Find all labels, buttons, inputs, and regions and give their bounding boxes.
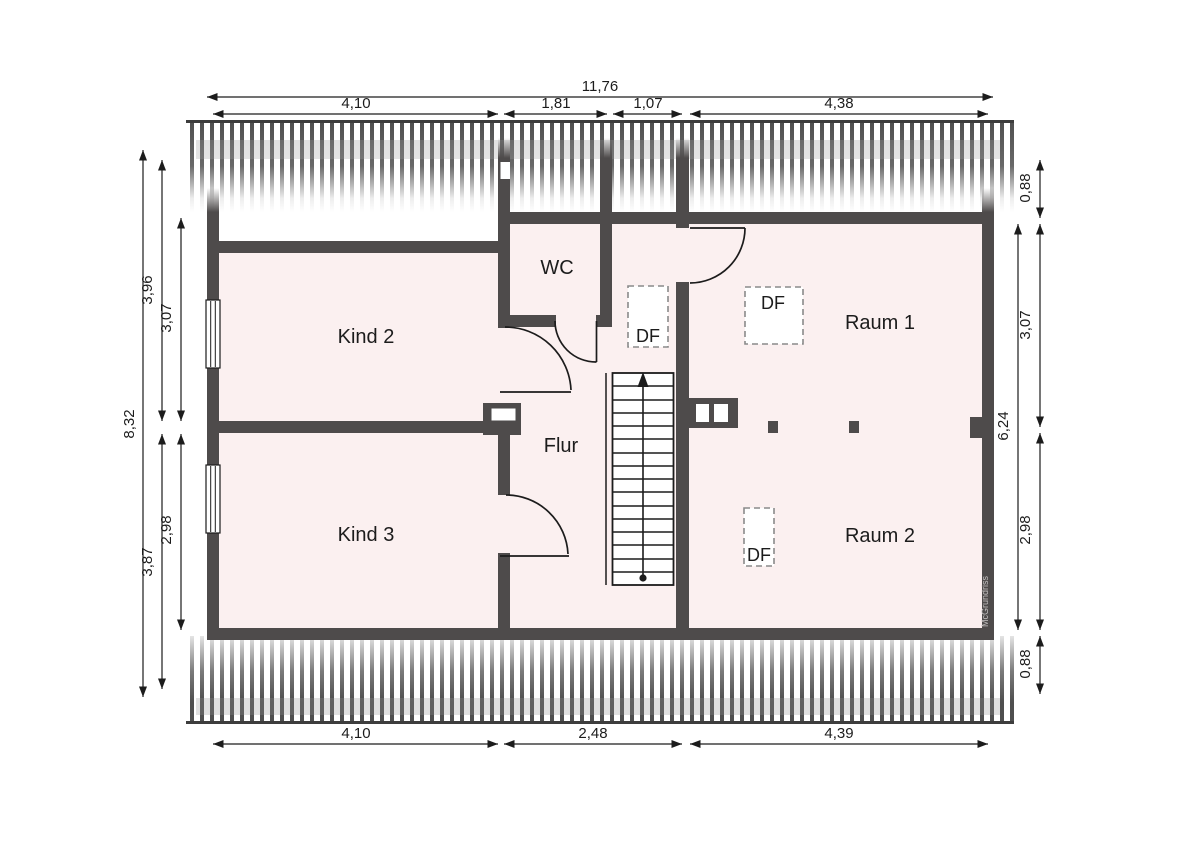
staircase xyxy=(606,372,674,585)
window-kind3 xyxy=(206,465,220,533)
dim-label-right-inner-total: 6,24 xyxy=(995,411,1012,440)
dim-label-bottom-3: 4,39 xyxy=(824,725,853,742)
room-label-kind3: Kind 3 xyxy=(338,524,395,546)
roof-window-label-raum2: DF xyxy=(747,545,771,565)
wall-divider-kind2-kind3 xyxy=(207,421,502,433)
post-2 xyxy=(849,421,859,433)
roof-hatch-bottom xyxy=(186,636,1014,724)
wall-flur-west-upper xyxy=(498,433,510,495)
stair-start-dot xyxy=(639,574,646,581)
watermark: McGrundriss xyxy=(980,575,990,627)
dim-label-top-2: 1,81 xyxy=(541,95,570,112)
post-1 xyxy=(768,421,778,433)
wall-right-gable xyxy=(982,212,994,640)
floor-plan-canvas: DF DF DF Kind 2 Kind 3 WC Flur Raum 1 Ra… xyxy=(0,0,1200,848)
room-label-kind2: Kind 2 xyxy=(338,326,395,348)
wall-wc-left-fade xyxy=(498,138,510,158)
roof-window-label-middle: DF xyxy=(636,326,660,346)
roof-fade-bottom xyxy=(186,636,1014,724)
roof-edge-line-top xyxy=(186,120,1014,123)
dim-label-left-outer-1: 3,96 xyxy=(139,275,156,304)
wall-bottom xyxy=(207,628,994,640)
room-label-raum1: Raum 1 xyxy=(845,312,915,334)
dim-label-top-total: 11,76 xyxy=(582,78,618,95)
dim-label-right-3: 2,98 xyxy=(1017,515,1034,544)
window-kind2 xyxy=(206,300,220,368)
chimney-stair-flue-1 xyxy=(696,404,709,422)
chimney-stair-flue-2 xyxy=(714,404,728,422)
dim-label-bottom-2: 2,48 xyxy=(578,725,607,742)
wall-wc-right-fade xyxy=(600,138,612,158)
wall-stair-east-lower xyxy=(676,282,689,640)
wall-top-main xyxy=(498,212,994,224)
knee-wall-gap xyxy=(219,212,498,241)
wall-stair-east-upper xyxy=(676,158,689,228)
wall-flur-west-lower xyxy=(498,553,510,640)
dim-label-right-2: 3,07 xyxy=(1017,310,1034,339)
wall-wc-left xyxy=(498,158,510,328)
dim-label-left-total: 8,32 xyxy=(121,409,138,438)
dim-label-top-1: 4,10 xyxy=(341,95,370,112)
room-label-flur: Flur xyxy=(544,435,579,457)
wall-stub-right xyxy=(970,417,982,438)
dim-label-top-4: 4,38 xyxy=(824,95,853,112)
dim-label-right-1: 0,88 xyxy=(1017,173,1034,202)
wall-wc-bottom-right xyxy=(596,315,612,327)
dim-label-right-4: 0,88 xyxy=(1017,649,1034,678)
wall-right-gable-fade xyxy=(982,188,994,212)
wall-niche xyxy=(501,162,511,179)
dim-label-left-inner-1: 3,07 xyxy=(158,303,175,332)
dim-label-bottom-1: 4,10 xyxy=(341,725,370,742)
roof-edge-line-bottom xyxy=(186,721,1014,724)
wall-stair-east-fade xyxy=(676,138,689,158)
room-label-raum2: Raum 2 xyxy=(845,525,915,547)
dim-label-top-3: 1,07 xyxy=(633,95,662,112)
wall-wc-right xyxy=(600,158,612,327)
dim-label-left-outer-2: 3,87 xyxy=(139,547,156,576)
wall-top-kind2 xyxy=(207,241,504,253)
chimney-flur-flue xyxy=(491,408,516,421)
roof-window-label-raum1: DF xyxy=(761,293,785,313)
wall-wc-bottom-left xyxy=(498,315,556,327)
wall-left-gable-fade xyxy=(207,188,219,212)
room-label-wc: WC xyxy=(540,257,573,279)
dim-label-left-inner-2: 2,98 xyxy=(158,515,175,544)
